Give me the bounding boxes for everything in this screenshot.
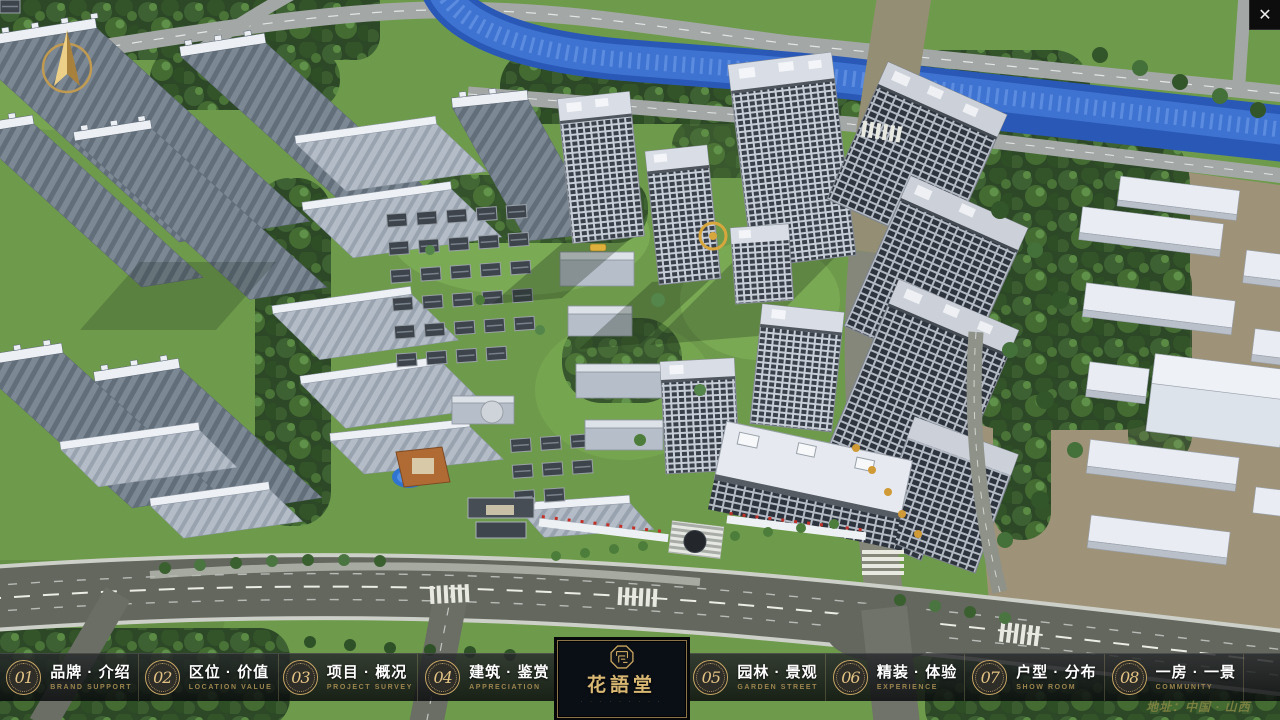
- nav-label-zh: 精装 · 体验: [877, 665, 957, 680]
- nav-label-en: PROJECT SURVEY: [327, 684, 413, 691]
- nav-label-en: COMMUNITY: [1156, 684, 1214, 691]
- brand-tagline: · · · · · · · · ·: [580, 699, 662, 705]
- nav-item-project-survey[interactable]: 03 项目 · 概况 PROJECT SURVEY: [278, 654, 417, 701]
- nav-item-room-view[interactable]: 08 一房 · 一景 COMMUNITY: [1104, 654, 1243, 701]
- nav-label-zh: 建筑 · 鉴赏: [469, 665, 549, 680]
- nav-item-decor-experience[interactable]: 06 精装 · 体验 EXPERIENCE: [825, 654, 964, 701]
- nav-end-spacer: [1243, 654, 1280, 701]
- nav-item-location-value[interactable]: 02 区位 · 价值 LOCATION VALUE: [138, 654, 277, 701]
- nav-label-en: APPRECIATION: [469, 684, 541, 691]
- nav-number-badge: 05: [693, 660, 728, 695]
- nav-group-left: 01 品牌 · 介绍 BRAND SUPPORT 02 区位 · 价值 LOCA…: [0, 654, 557, 701]
- nav-label-zh: 项目 · 概况: [327, 665, 407, 680]
- nav-label-zh: 园林 · 景观: [737, 665, 817, 680]
- nav-item-architecture[interactable]: 04 建筑 · 鉴赏 APPRECIATION: [417, 654, 556, 701]
- nav-number-badge: 01: [6, 660, 41, 695]
- nav-label-en: LOCATION VALUE: [189, 684, 273, 691]
- project-address: 地址：中国 · 山西: [1146, 698, 1251, 715]
- nav-item-garden-landscape[interactable]: 05 园林 · 景观 GARDEN STREET: [687, 654, 825, 701]
- brand-name: 花語堂: [587, 670, 656, 697]
- nav-item-brand-intro[interactable]: 01 品牌 · 介绍 BRAND SUPPORT: [0, 654, 138, 701]
- nav-label-zh: 户型 · 分布: [1016, 665, 1096, 680]
- nav-label-en: EXPERIENCE: [877, 684, 938, 691]
- nav-number-badge: 03: [283, 660, 318, 695]
- nav-number-badge: 08: [1112, 660, 1147, 695]
- presentation-screen: ✕ 01 品牌 · 介绍 BRAND SUPPORT 02 区位 · 价值 LO…: [0, 0, 1280, 720]
- nav-label-zh: 区位 · 价值: [189, 665, 269, 680]
- close-button[interactable]: ✕: [1249, 0, 1280, 30]
- nav-item-floorplan-distribution[interactable]: 07 户型 · 分布 SHOW ROOM: [964, 654, 1103, 701]
- nav-label-zh: 一房 · 一景: [1156, 665, 1236, 680]
- close-icon: ✕: [1258, 5, 1271, 25]
- masterplan-aerial-render: [0, 0, 1280, 720]
- bottom-nav-bar: 01 品牌 · 介绍 BRAND SUPPORT 02 区位 · 价值 LOCA…: [0, 653, 1280, 701]
- nav-number-badge: 04: [425, 660, 460, 695]
- nav-group-right: 05 园林 · 景观 GARDEN STREET 06 精装 · 体验 EXPE…: [687, 654, 1244, 701]
- nav-number-badge: 02: [145, 660, 180, 695]
- nav-label-en: SHOW ROOM: [1016, 684, 1076, 691]
- nav-label-en: BRAND SUPPORT: [50, 684, 132, 691]
- nav-label-en: GARDEN STREET: [737, 684, 818, 691]
- seal-icon: [610, 645, 634, 669]
- nav-label-zh: 品牌 · 介绍: [50, 665, 130, 680]
- brand-logo-panel[interactable]: 花語堂 · · · · · · · · ·: [557, 640, 687, 718]
- nav-number-badge: 06: [833, 660, 868, 695]
- nav-number-badge: 07: [972, 660, 1007, 695]
